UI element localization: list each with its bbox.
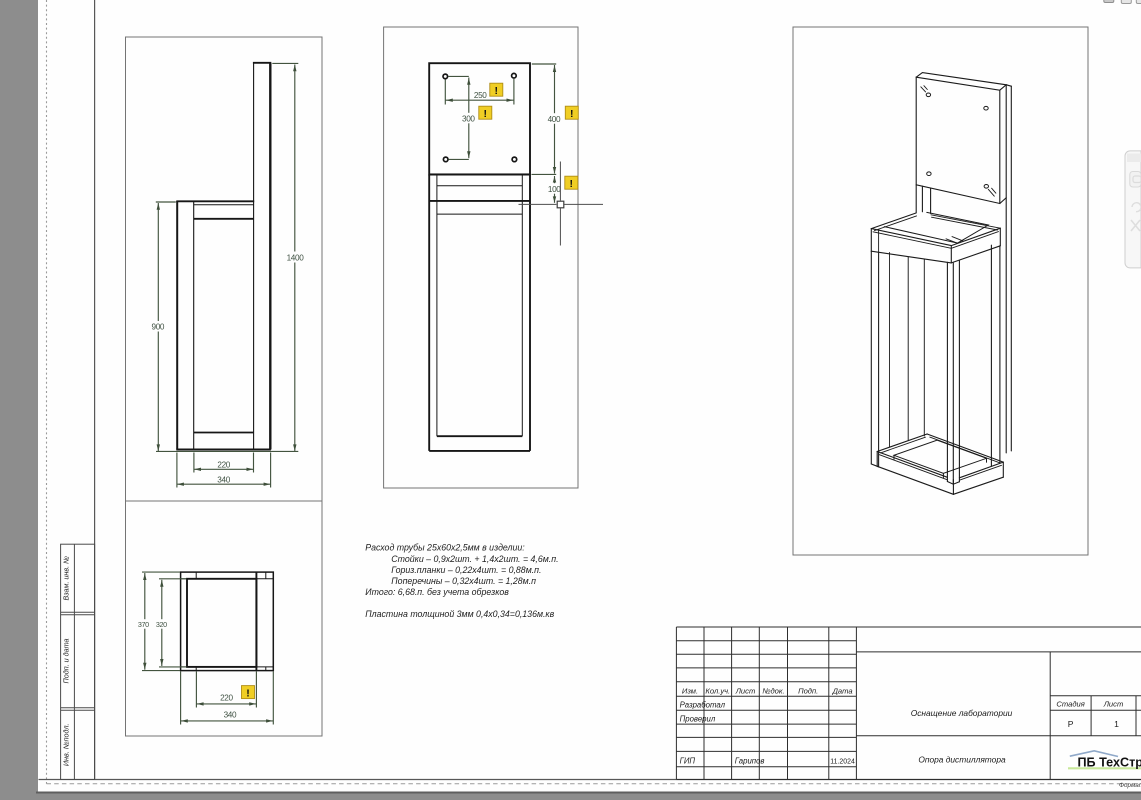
svg-text:Подп.: Подп. xyxy=(798,687,818,696)
svg-text:Кол.уч.: Кол.уч. xyxy=(705,687,730,696)
svg-text:№док.: №док. xyxy=(762,687,784,696)
svg-text:1: 1 xyxy=(1114,719,1119,729)
svg-text:Взам. инв. №: Взам. инв. № xyxy=(62,556,71,601)
svg-text:320: 320 xyxy=(156,620,167,629)
svg-text:Поперечины – 0,32х4шт. = 1,28м: Поперечины – 0,32х4шт. = 1,28м.п xyxy=(391,576,536,586)
svg-text:Разработал: Разработал xyxy=(680,701,726,710)
svg-text:!: ! xyxy=(570,178,574,190)
svg-text:Р: Р xyxy=(1068,719,1074,729)
svg-text:Оснащение лаборатории: Оснащение лаборатории xyxy=(911,708,1013,718)
svg-text:340: 340 xyxy=(224,711,237,720)
svg-text:Дата: Дата xyxy=(832,687,853,696)
svg-text:!: ! xyxy=(570,108,574,120)
svg-text:Пластина толщиной 3мм 0,4х0,34: Пластина толщиной 3мм 0,4х0,34=0,136м.кв xyxy=(365,609,554,619)
svg-text:Лист: Лист xyxy=(735,687,756,696)
svg-text:340: 340 xyxy=(217,476,230,485)
svg-text:Подп. и дата: Подп. и дата xyxy=(62,639,71,684)
svg-text:220: 220 xyxy=(217,461,230,470)
svg-text:Стойки – 0,9х2шт. + 1,4х2шт. =: Стойки – 0,9х2шт. + 1,4х2шт. = 4,6м.п. xyxy=(391,554,558,564)
svg-text:Проверил: Проверил xyxy=(680,714,716,723)
svg-text:370: 370 xyxy=(138,620,149,629)
svg-text:ГИП: ГИП xyxy=(680,756,696,765)
svg-text:250: 250 xyxy=(474,91,487,100)
svg-text:!: ! xyxy=(495,85,499,97)
svg-text:Опора дистиллятора: Опора дистиллятора xyxy=(918,754,1006,764)
svg-text:Инв. №подл.: Инв. №подл. xyxy=(62,723,71,766)
svg-text:300: 300 xyxy=(462,115,475,124)
svg-text:Лист: Лист xyxy=(1103,699,1124,708)
svg-text:Формат А3: Формат А3 xyxy=(1119,782,1141,789)
svg-text:900: 900 xyxy=(151,323,164,332)
svg-text:Итого: 6,68.п. без учета обрез: Итого: 6,68.п. без учета обрезков xyxy=(365,587,509,597)
svg-text:Изм.: Изм. xyxy=(682,687,698,696)
svg-text:400: 400 xyxy=(548,115,561,124)
svg-text:ПБ ТехСтр: ПБ ТехСтр xyxy=(1078,755,1141,769)
svg-text:!: ! xyxy=(246,687,250,699)
svg-text:220: 220 xyxy=(220,694,233,703)
svg-text:!: ! xyxy=(484,108,488,120)
svg-text:Гориз.планки – 0,22х4шт. = 0,8: Гориз.планки – 0,22х4шт. = 0,88м.п. xyxy=(391,565,541,575)
svg-text:1400: 1400 xyxy=(287,253,305,262)
svg-text:Расход трубы 25х60х2,5мм в изд: Расход трубы 25х60х2,5мм в изделии: xyxy=(365,543,525,553)
svg-text:100: 100 xyxy=(548,185,561,194)
svg-text:Гарипов: Гарипов xyxy=(735,756,765,765)
svg-text:11.2024: 11.2024 xyxy=(830,756,855,765)
svg-text:Стадия: Стадия xyxy=(1056,699,1084,708)
